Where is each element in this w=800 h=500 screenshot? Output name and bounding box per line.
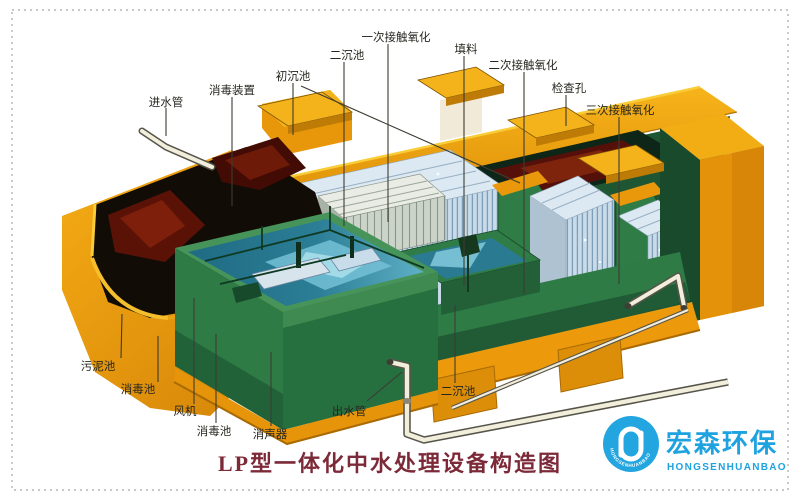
equipment-structure-diagram: 进水管消毒装置初沉池二沉池一次接触氧化填料二次接触氧化检查孔三次接触氧化污泥池消…	[0, 0, 800, 500]
part-label: 二次接触氧化	[489, 58, 558, 72]
diagram-canvas: 进水管消毒装置初沉池二沉池一次接触氧化填料二次接触氧化检查孔三次接触氧化污泥池消…	[0, 0, 800, 500]
part-label: 一次接触氧化	[362, 30, 431, 44]
logo: HONGSENHUANBAO 宏森环保 HONGSENHUANBAO	[603, 416, 787, 473]
part-label: 进水管	[149, 95, 184, 109]
inlet-pipe	[142, 131, 212, 167]
part-label: 三次接触氧化	[586, 103, 655, 117]
part-label: 消声器	[253, 427, 288, 441]
part-label: 出水管	[332, 404, 367, 418]
part-label: 消毒池	[197, 424, 232, 438]
logo-name-cn: 宏森环保	[666, 428, 778, 459]
part-label: 检查孔	[552, 81, 587, 95]
part-label: 二沉池	[330, 48, 365, 62]
part-label: 二沉池	[441, 384, 476, 398]
part-label: 消毒池	[121, 382, 156, 396]
part-label: 初沉池	[276, 69, 311, 83]
diagram-title: LP型一体化中水处理设备构造图	[218, 451, 562, 476]
part-label: 风机	[174, 404, 197, 418]
logo-name-en: HONGSENHUANBAO	[667, 462, 787, 473]
inspection-lid	[418, 67, 504, 141]
part-label: 消毒装置	[209, 83, 255, 97]
part-label: 污泥池	[81, 359, 116, 373]
part-label: 填料	[455, 42, 478, 56]
